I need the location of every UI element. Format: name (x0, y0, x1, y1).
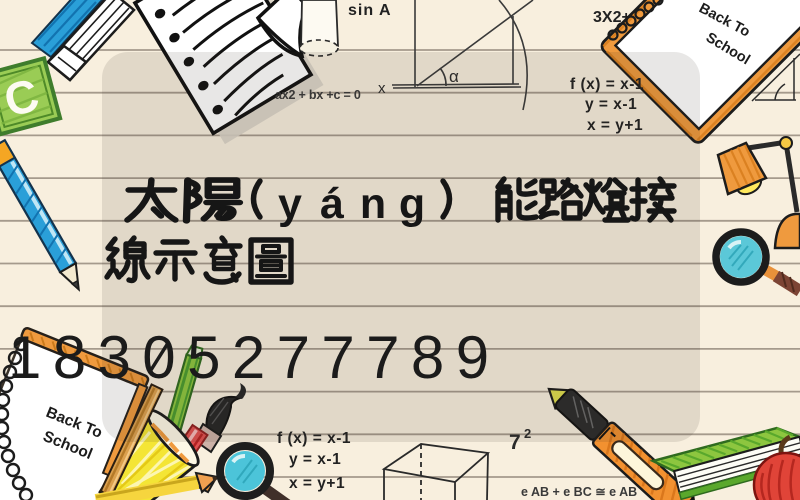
svg-text:g: g (399, 180, 425, 228)
svg-text:y = x-1: y = x-1 (289, 451, 341, 468)
svg-text:á: á (320, 180, 345, 228)
svg-text:y: y (278, 180, 302, 228)
svg-text:e AB + e BC ≅ e AB: e AB + e BC ≅ e AB (521, 485, 637, 499)
svg-text:n: n (360, 180, 386, 228)
svg-text:sin A: sin A (348, 2, 392, 19)
svg-text:18305277789: 18305277789 (8, 324, 500, 391)
svg-text:x = y+1: x = y+1 (289, 475, 345, 492)
